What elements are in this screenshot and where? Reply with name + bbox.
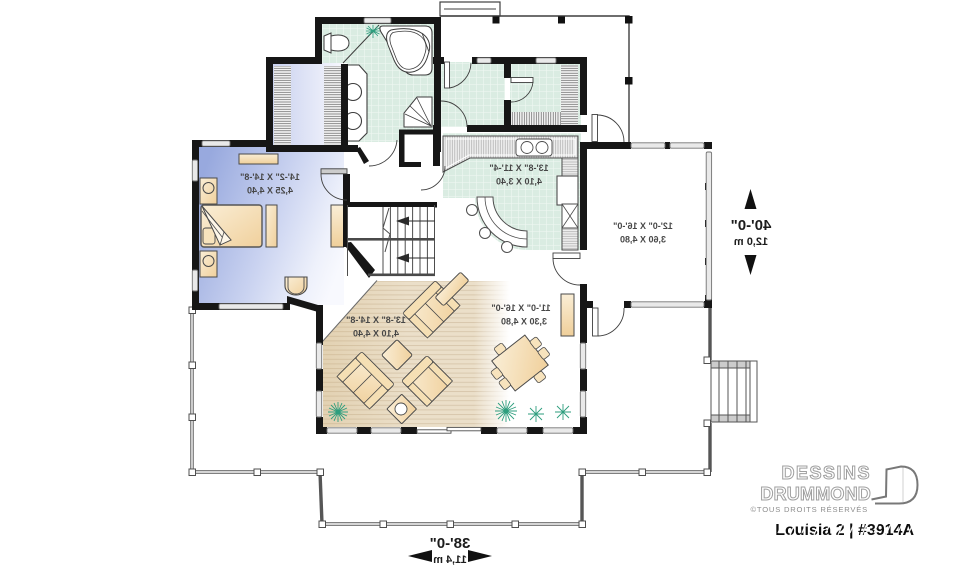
svg-text:12'-0" X 16'-0": 12'-0" X 16'-0" — [613, 221, 673, 231]
svg-text:13'-8" X 14'-8": 13'-8" X 14'-8" — [346, 315, 406, 325]
svg-text:3,60 X 4,80: 3,60 X 4,80 — [620, 235, 666, 245]
svg-text:14'-2" X 14'-8": 14'-2" X 14'-8" — [240, 172, 300, 182]
svg-text:4,10 X 4,40: 4,10 X 4,40 — [353, 329, 399, 339]
svg-text:Louisia 2 | #3914A: Louisia 2 | #3914A — [775, 522, 914, 539]
svg-text:12,0 m: 12,0 m — [734, 236, 768, 248]
svg-text:11'-0" X 16'-0": 11'-0" X 16'-0" — [491, 303, 550, 313]
svg-text:4,10 X 3,40: 4,10 X 3,40 — [496, 177, 542, 187]
svg-text:11,4 m: 11,4 m — [433, 554, 467, 566]
svg-text:40'-0": 40'-0" — [731, 217, 772, 234]
svg-text:DRUMMOND: DRUMMOND — [760, 484, 871, 504]
svg-text:3,30 X 4,80: 3,30 X 4,80 — [501, 317, 547, 327]
svg-text:DESSINS: DESSINS — [781, 463, 871, 483]
svg-text:13'-8" X 11'-4": 13'-8" X 11'-4" — [489, 163, 548, 173]
svg-text:4,25 X 4,40: 4,25 X 4,40 — [247, 186, 293, 196]
svg-text:©TOUS DROITS RÉSERVÉS: ©TOUS DROITS RÉSERVÉS — [751, 505, 868, 514]
svg-text:38'-0": 38'-0" — [430, 535, 471, 552]
